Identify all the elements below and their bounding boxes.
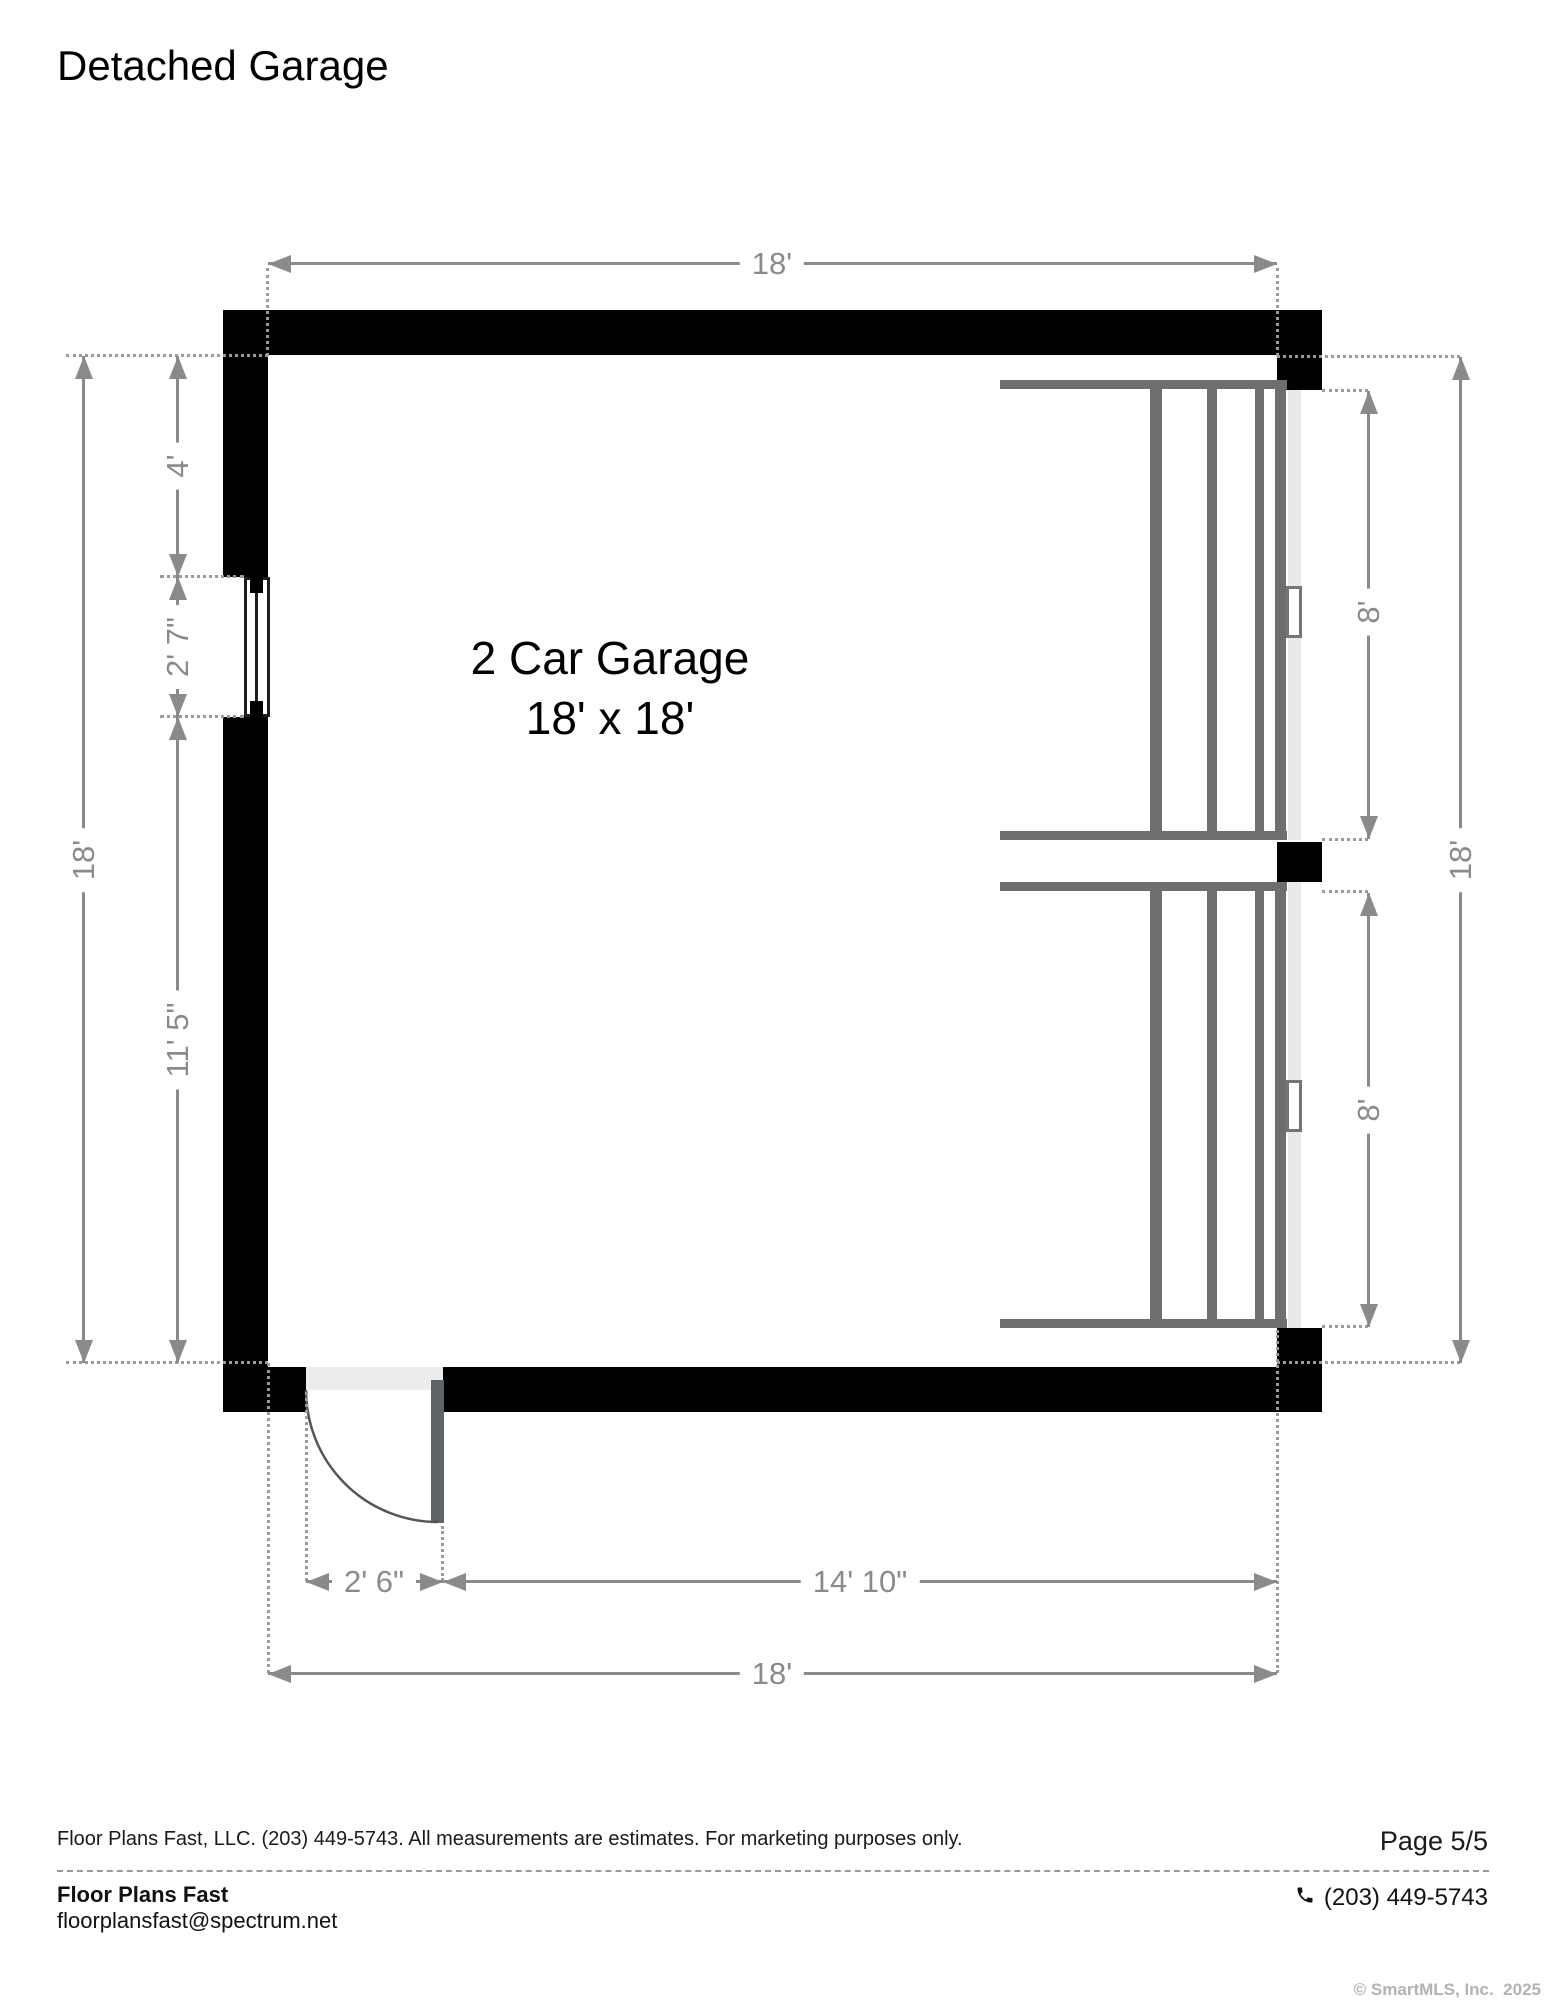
window-cap-top <box>250 577 263 593</box>
extension-line <box>66 1361 268 1364</box>
extension-line <box>267 1363 270 1673</box>
wall-bottom-right-segment <box>443 1367 1322 1412</box>
entry-door-swing-arc <box>300 1384 445 1529</box>
extension-line <box>1276 1330 1279 1673</box>
arrowhead <box>268 1665 291 1683</box>
wall-left-upper <box>223 310 268 577</box>
dim-right-door2-label: 8' <box>1349 1086 1389 1133</box>
copyright-text: © SmartMLS, Inc. 2025 <box>1354 1980 1541 2000</box>
dim-left-window-label: 2' 7" <box>158 605 198 689</box>
arrowhead <box>169 717 187 740</box>
phone-icon <box>1295 1884 1315 1912</box>
garage-door-2-handle <box>1286 1080 1302 1132</box>
company-phone: (203) 449-5743 <box>1295 1884 1488 1912</box>
extension-line <box>266 268 269 356</box>
dim-left-bottom-label: 11' 5" <box>158 991 198 1090</box>
arrowhead <box>306 1573 329 1591</box>
dim-bottom-overall-label: 18' <box>740 1654 804 1694</box>
extension-line <box>1277 1361 1460 1364</box>
window-cap-bottom <box>250 701 263 717</box>
arrowhead <box>1452 1340 1470 1363</box>
room-name: 2 Car Garage <box>380 628 840 688</box>
garage-door-1-panel <box>1275 380 1286 840</box>
arrowhead <box>75 1340 93 1363</box>
page-number: Page 5/5 <box>1380 1826 1488 1857</box>
wall-right-bottom-jamb <box>1277 1328 1322 1412</box>
floor-plan-page: Detached Garage <box>0 0 1545 2000</box>
dim-right-overall-label: 18' <box>1441 828 1481 892</box>
window-centerline <box>255 592 258 704</box>
dim-left-overall-label: 18' <box>64 828 104 892</box>
garage-door-2-track-bottom <box>1000 1319 1287 1328</box>
arrowhead <box>169 554 187 577</box>
extension-line <box>1277 355 1460 358</box>
company-name: Floor Plans Fast <box>57 1882 228 1908</box>
dim-left-top-label: 4' <box>158 442 198 489</box>
wall-right-middle-jamb <box>1277 842 1322 882</box>
extension-line <box>305 1392 308 1581</box>
wall-top <box>223 310 1322 355</box>
company-email: floorplansfast@spectrum.net <box>57 1908 337 1934</box>
dim-top-width-label: 18' <box>740 244 804 284</box>
garage-door-2-panel <box>1275 882 1286 1328</box>
garage-door-2-panel <box>1150 882 1162 1328</box>
garage-door-1-track-top <box>1000 380 1287 389</box>
wall-right-top-jamb <box>1277 310 1322 390</box>
room-label: 2 Car Garage 18' x 18' <box>380 628 840 748</box>
disclaimer-text: Floor Plans Fast, LLC. (203) 449-5743. A… <box>57 1828 963 1851</box>
arrowhead <box>1254 1573 1277 1591</box>
garage-door-2-track-top <box>1000 882 1287 891</box>
garage-door-2-panel <box>1255 882 1264 1328</box>
arrowhead <box>169 356 187 379</box>
extension-line <box>66 354 268 357</box>
arrowhead <box>268 255 291 273</box>
arrowhead <box>169 694 187 717</box>
garage-door-1-handle <box>1286 586 1302 638</box>
garage-door-1-track-bottom <box>1000 831 1287 840</box>
arrowhead <box>1360 1304 1378 1327</box>
arrowhead <box>1452 357 1470 380</box>
wall-bottom-left-segment <box>223 1367 306 1412</box>
arrowhead <box>1360 893 1378 916</box>
dim-right-door1-label: 8' <box>1349 588 1389 635</box>
extension-line <box>1276 268 1279 356</box>
garage-door-1-panel <box>1255 380 1264 840</box>
garage-door-1-panel <box>1207 380 1217 840</box>
arrowhead <box>1360 816 1378 839</box>
arrowhead <box>420 1573 443 1591</box>
arrowhead <box>1360 391 1378 414</box>
garage-door-1-panel <box>1150 380 1162 840</box>
arrowhead <box>1254 1665 1277 1683</box>
garage-door-2-panel <box>1207 882 1217 1328</box>
dim-bottom-door-label: 2' 6" <box>332 1562 416 1602</box>
room-size: 18' x 18' <box>380 688 840 748</box>
arrowhead <box>443 1573 466 1591</box>
dim-bottom-right-label: 14' 10" <box>801 1562 920 1602</box>
arrowhead <box>1254 255 1277 273</box>
arrowhead <box>169 1340 187 1363</box>
arrowhead <box>169 577 187 600</box>
wall-left-lower <box>223 717 268 1412</box>
footer-divider <box>57 1870 1489 1872</box>
page-title: Detached Garage <box>57 42 389 90</box>
arrowhead <box>75 356 93 379</box>
phone-number: (203) 449-5743 <box>1324 1884 1488 1912</box>
